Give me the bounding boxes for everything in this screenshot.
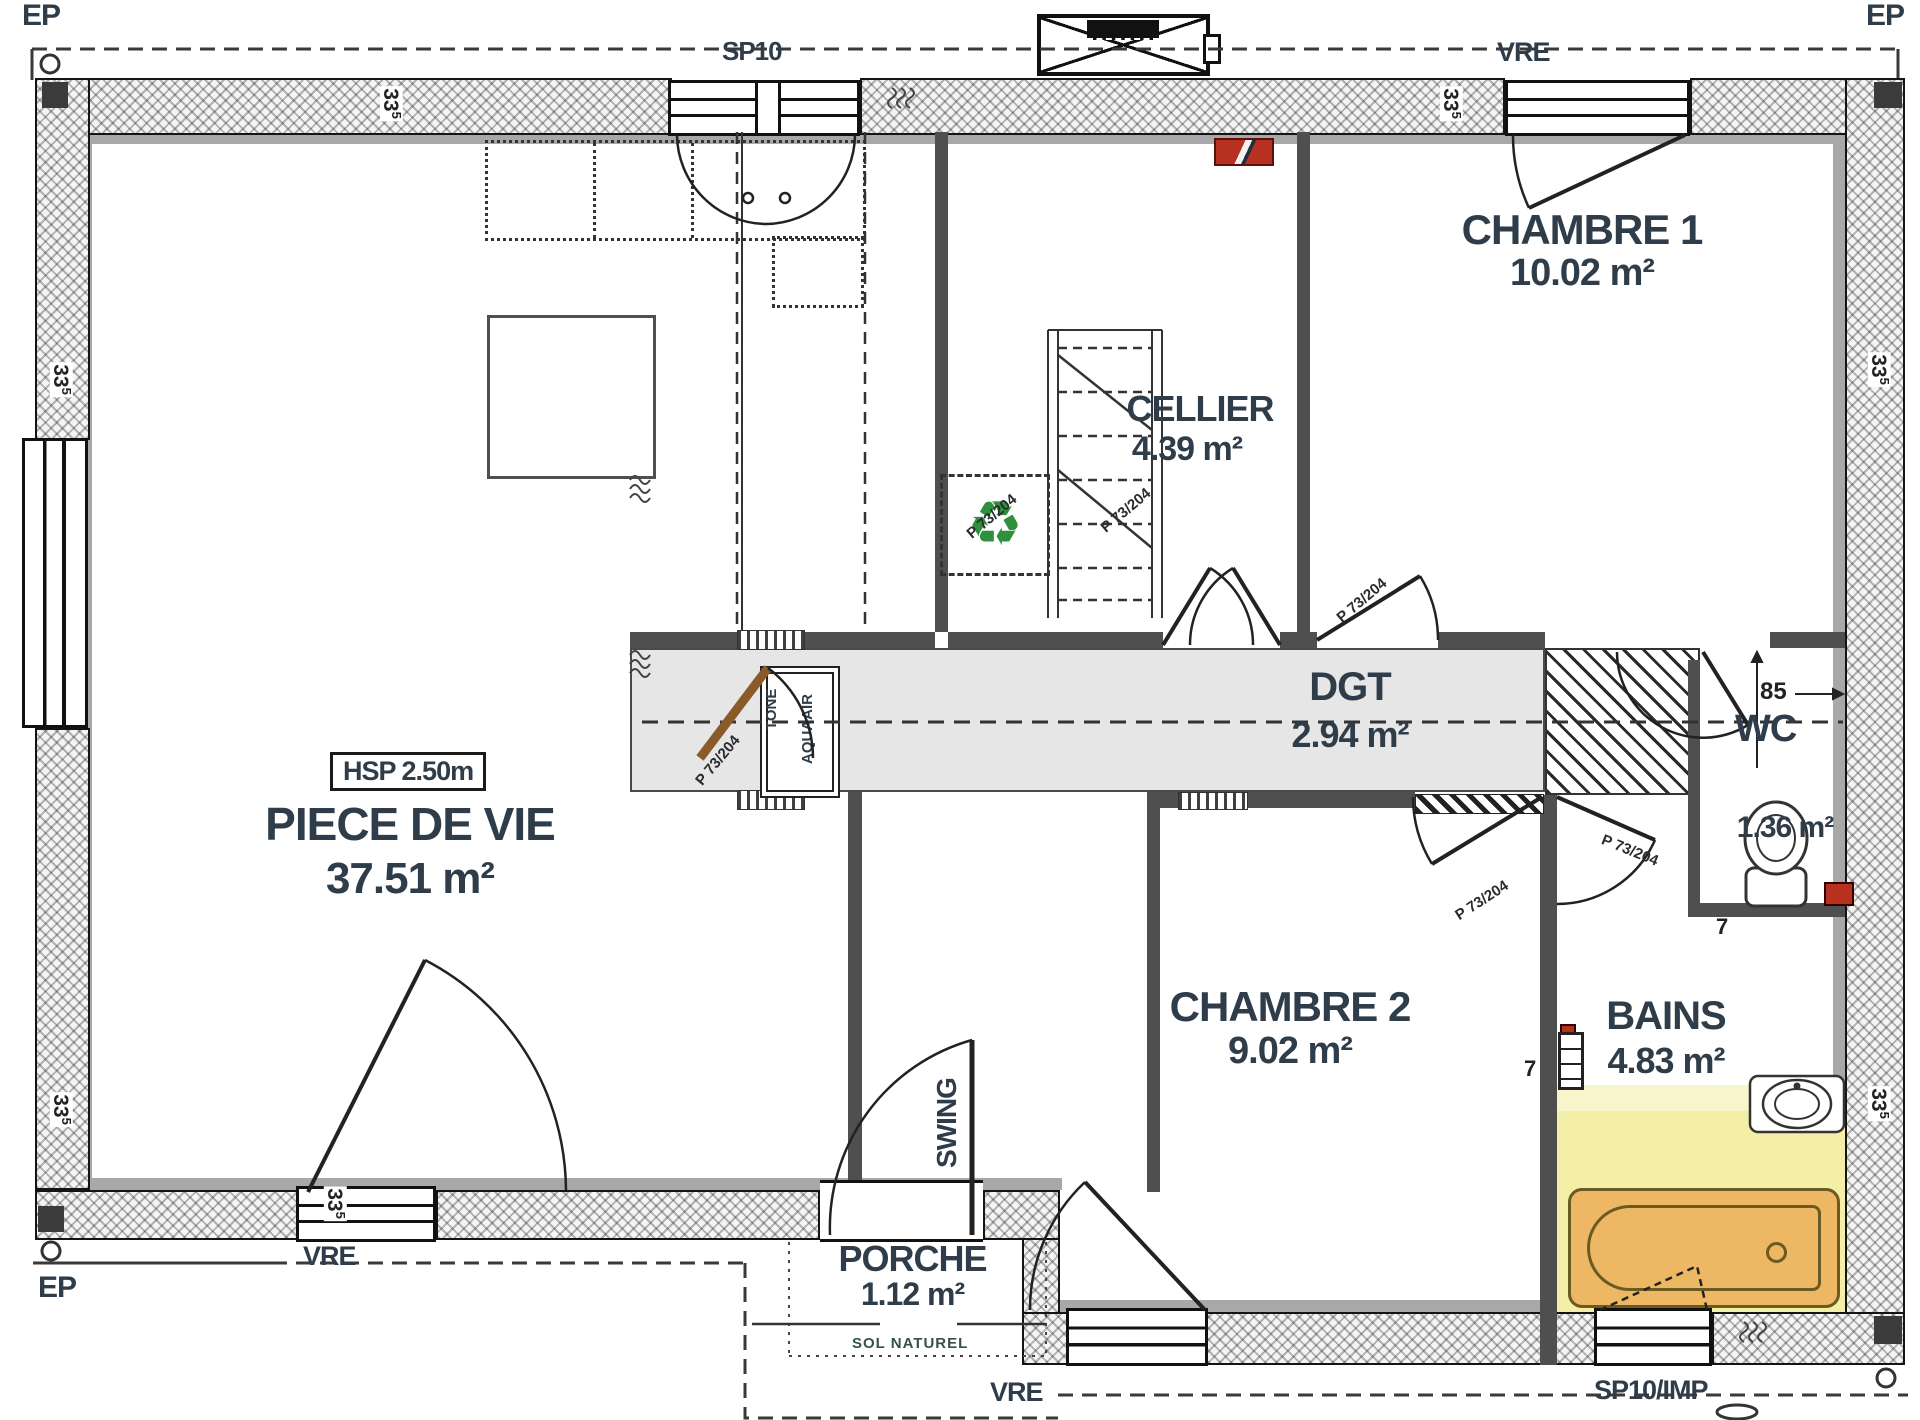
wall-dim-marker: 335 bbox=[1868, 1086, 1891, 1121]
wall-dim-marker: 335 bbox=[1440, 86, 1463, 121]
wall-dim-marker: 335 bbox=[1868, 352, 1891, 387]
wall-chambre2-bains bbox=[1540, 795, 1557, 1365]
door-spec-label: P 73/204 bbox=[1599, 831, 1661, 869]
ceiling-height-badge: HSP 2.50m bbox=[330, 752, 486, 791]
kitchen-counter bbox=[485, 140, 866, 241]
window-mullion bbox=[755, 83, 781, 133]
wall-wing-west bbox=[1022, 1238, 1060, 1316]
wall-corridor-top-5 bbox=[1770, 632, 1845, 648]
ep-label-bottom-left: EP bbox=[38, 1272, 76, 1304]
corner-post-br bbox=[1874, 1316, 1902, 1344]
corner-post-tr bbox=[1874, 82, 1902, 108]
door-spec-label: P 73/204 bbox=[1452, 877, 1511, 924]
stove-label-1: TONE bbox=[764, 689, 780, 730]
room-name-cellier: CELLIER bbox=[1085, 390, 1315, 428]
kitchen-counter-divider bbox=[593, 143, 596, 238]
stove-box: TONE AQUAAIR bbox=[760, 666, 840, 798]
wall-dim-marker: 335 bbox=[50, 362, 73, 397]
vent-grille-1 bbox=[737, 630, 805, 650]
room-area-piece-de-vie: 37.51 m² bbox=[210, 856, 610, 902]
window-sp10 bbox=[668, 80, 860, 136]
room-name-wc: WC bbox=[1735, 710, 1796, 750]
room-area-cellier: 4.39 m² bbox=[1072, 432, 1302, 468]
wall-top-1 bbox=[40, 78, 672, 135]
window-vre-bottom-left bbox=[296, 1186, 436, 1242]
kitchen-counter-2 bbox=[772, 236, 864, 308]
bathroom-floor-strip bbox=[1557, 1085, 1845, 1111]
bathtub bbox=[1568, 1188, 1840, 1308]
wall-bottom-left-1 bbox=[35, 1190, 300, 1240]
wall-wing-bottom-2 bbox=[1206, 1312, 1596, 1365]
wall-wing-bottom-1 bbox=[1022, 1312, 1072, 1365]
radiator-chambre1 bbox=[1214, 138, 1274, 166]
chambre2-door-threshold bbox=[1415, 794, 1544, 814]
room-name-bains: BAINS bbox=[1546, 995, 1786, 1037]
wall-right bbox=[1845, 78, 1905, 1365]
room-area-chambre2: 9.02 m² bbox=[1140, 1032, 1440, 1072]
wall-dim-marker: 335 bbox=[380, 86, 403, 121]
sp10-label: SP10 bbox=[722, 38, 782, 65]
room-name-porche: PORCHE bbox=[800, 1240, 1025, 1278]
ep-label-top-right: EP bbox=[1866, 0, 1904, 32]
meter-box-label-bar bbox=[1087, 20, 1159, 40]
wall-top-2 bbox=[860, 78, 1505, 135]
meter-box bbox=[1037, 14, 1210, 76]
window-left bbox=[22, 438, 88, 728]
room-area-dgt: 2.94 m² bbox=[1270, 716, 1430, 754]
entry-door-opening bbox=[820, 1180, 983, 1242]
floorplan: ♻ TONE AQUAAIR bbox=[0, 0, 1920, 1420]
vre-label-bottom-left: VRE bbox=[303, 1242, 356, 1270]
window-vre-wing bbox=[1066, 1308, 1208, 1366]
swing-door-label: SWING bbox=[932, 1048, 961, 1168]
room-name-dgt: DGT bbox=[1270, 666, 1430, 708]
meter-box-nub bbox=[1203, 34, 1221, 64]
room-area-porche: 1.12 m² bbox=[800, 1278, 1025, 1312]
sol-naturel-label: SOL NATUREL bbox=[852, 1336, 968, 1352]
kitchen-island bbox=[487, 315, 656, 479]
sp10imp-label: SP10/IMP bbox=[1594, 1376, 1708, 1404]
door-spec-label: P 73/204 bbox=[1334, 575, 1391, 626]
ep-label-top-left: EP bbox=[22, 0, 60, 32]
small-dim-2: 7 bbox=[1716, 914, 1728, 940]
wall-bottom-left-2 bbox=[436, 1190, 820, 1240]
wall-wc-south bbox=[1688, 903, 1845, 917]
vre-label-top: VRE bbox=[1497, 38, 1550, 66]
kitchen-counter-divider bbox=[691, 143, 694, 238]
door-spec-label: P 73/204 bbox=[1098, 485, 1155, 536]
room-area-chambre1: 10.02 m² bbox=[1432, 254, 1732, 294]
wc-width-dim: 85 bbox=[1760, 678, 1787, 706]
room-name-chambre1: CHAMBRE 1 bbox=[1432, 208, 1732, 252]
window-vre-top bbox=[1505, 80, 1690, 136]
window-sp10imp bbox=[1594, 1308, 1712, 1366]
room-area-bains: 4.83 m² bbox=[1546, 1042, 1786, 1080]
wall-dim-marker: 335 bbox=[324, 1186, 347, 1221]
radiator-wc bbox=[1824, 882, 1854, 906]
corner-post-bl bbox=[38, 1206, 64, 1232]
room-area-wc: 1.36 m² bbox=[1720, 812, 1850, 844]
wall-wc-west bbox=[1688, 660, 1700, 903]
wall-pdv-hall bbox=[848, 792, 862, 1197]
attic-hatch-area bbox=[1545, 648, 1700, 795]
wall-corridor-top-2 bbox=[948, 632, 1163, 648]
room-name-chambre2: CHAMBRE 2 bbox=[1140, 985, 1440, 1029]
recycle-zone: ♻ bbox=[940, 474, 1050, 576]
wall-corridor-top-4 bbox=[1438, 632, 1545, 648]
wall-dim-marker: 335 bbox=[50, 1092, 73, 1127]
staircase bbox=[1048, 330, 1162, 618]
vre-label-bottom-center: VRE bbox=[990, 1378, 1043, 1406]
wall-corridor-top-3 bbox=[1280, 632, 1317, 648]
room-name-piece-de-vie: PIECE DE VIE bbox=[210, 800, 610, 848]
vent-grille-3 bbox=[1178, 792, 1248, 810]
stove-label-2: AQUAAIR bbox=[800, 694, 816, 764]
bathtub-drain bbox=[1766, 1242, 1787, 1263]
corner-post-tl bbox=[42, 82, 68, 108]
wall-bottom-left-3 bbox=[983, 1190, 1060, 1240]
small-dim-1: 7 bbox=[1524, 1056, 1536, 1082]
